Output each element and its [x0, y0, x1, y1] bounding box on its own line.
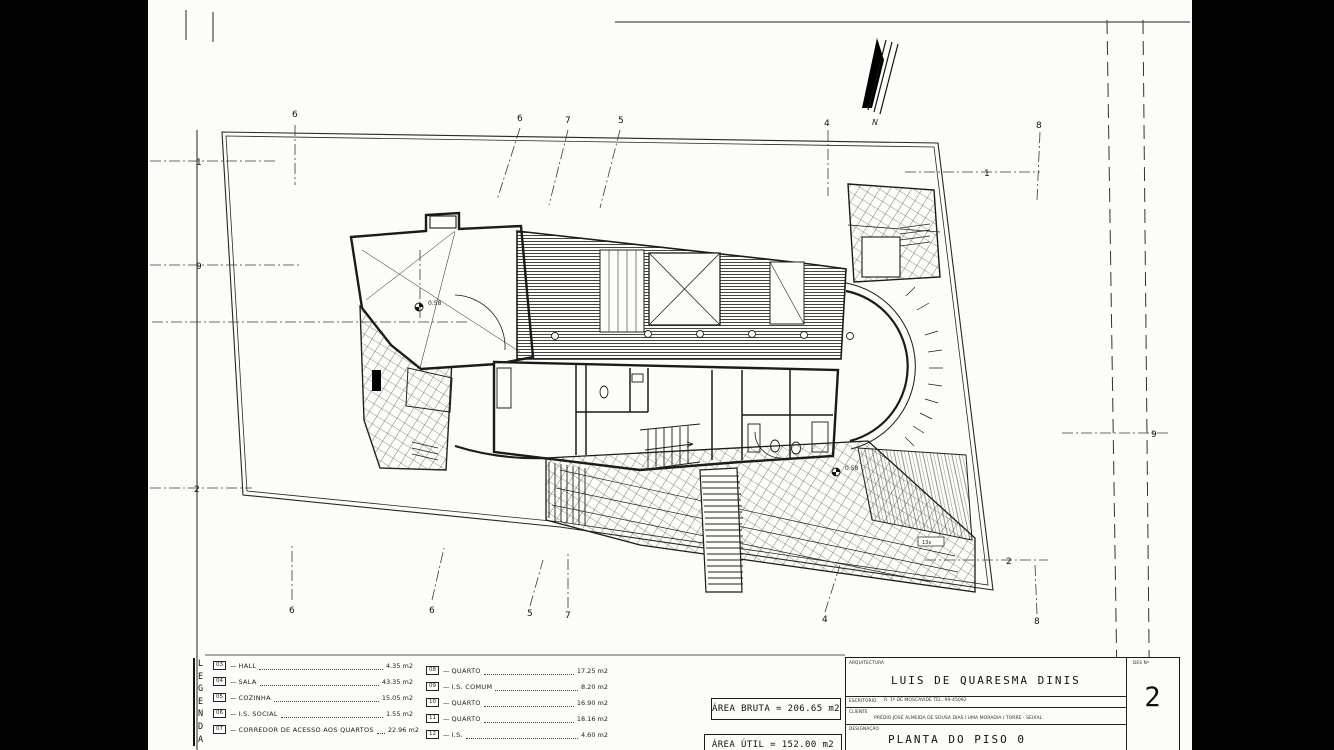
- office-info: R. 1º DE MOSCAVIDE TEL. 99-45092: [884, 698, 967, 703]
- grid-mark: 2: [194, 485, 200, 495]
- curved-wall: [846, 283, 943, 449]
- architect-name: LUIS DE QUARESMA DINIS: [891, 674, 1081, 687]
- drawing-title: PLANTA DO PISO 0: [888, 733, 1026, 746]
- stair-note: 13x: [922, 540, 931, 546]
- grid-mark: 9: [1151, 430, 1157, 440]
- grid-mark: 7: [565, 116, 571, 126]
- grid-mark: 2: [1006, 557, 1012, 567]
- area-util-box: ÁREA ÚTIL = 152.00 m2: [704, 734, 842, 750]
- grid-mark: 5: [527, 609, 533, 619]
- grid-mark: 6: [289, 606, 295, 616]
- grid-mark: 6: [292, 110, 298, 120]
- client-label: CLIENTE: [849, 709, 868, 714]
- area-bruta-box: ÁREA BRUTA = 206.65 m2: [711, 698, 841, 720]
- grid-mark: 1: [196, 158, 202, 168]
- grid-mark: 4: [824, 119, 830, 129]
- grid-mark: 7: [565, 611, 571, 621]
- sheet-number: 2: [1126, 682, 1179, 713]
- grid-mark: 8: [1034, 617, 1040, 627]
- title-block: ARQUITECTURA LUIS DE QUARESMA DINIS ESCR…: [845, 657, 1180, 750]
- grid-mark: 4: [822, 615, 828, 625]
- scanned-drawing-page: N: [0, 0, 1334, 750]
- road-lines: [1107, 20, 1150, 750]
- north-label: N: [872, 118, 878, 127]
- level-label-2: 0.58: [845, 465, 859, 472]
- scan-black-margin-right: [1192, 0, 1334, 750]
- client-info: PRÉDIO JOSÉ ALMEIDA DE SOUSA DIAS I UMA …: [874, 716, 1042, 721]
- radial-ticks: [905, 287, 943, 446]
- grid-mark: 6: [517, 114, 523, 124]
- grid-mark: 8: [1036, 121, 1042, 131]
- floor-plan-drawing: N: [0, 0, 1334, 750]
- grid-mark: 1: [984, 169, 990, 179]
- grid-mark: 5: [618, 116, 624, 126]
- north-arrow-icon: N: [862, 38, 898, 127]
- grid-mark: 9: [196, 262, 202, 272]
- office-label: ESCRITÓRIO: [849, 698, 877, 703]
- grid-mark: 6: [429, 606, 435, 616]
- column-fill: [372, 370, 381, 391]
- upper-terrace: [848, 184, 940, 282]
- discipline-label: ARQUITECTURA: [849, 660, 884, 665]
- designation-label: DESIGNAÇÃO: [849, 726, 879, 731]
- scan-black-margin-left: [0, 0, 148, 750]
- level-label-1: 0.58: [428, 300, 442, 307]
- sheet-no-label: DES Nº: [1133, 660, 1149, 665]
- deck-hatched-area: [517, 231, 854, 359]
